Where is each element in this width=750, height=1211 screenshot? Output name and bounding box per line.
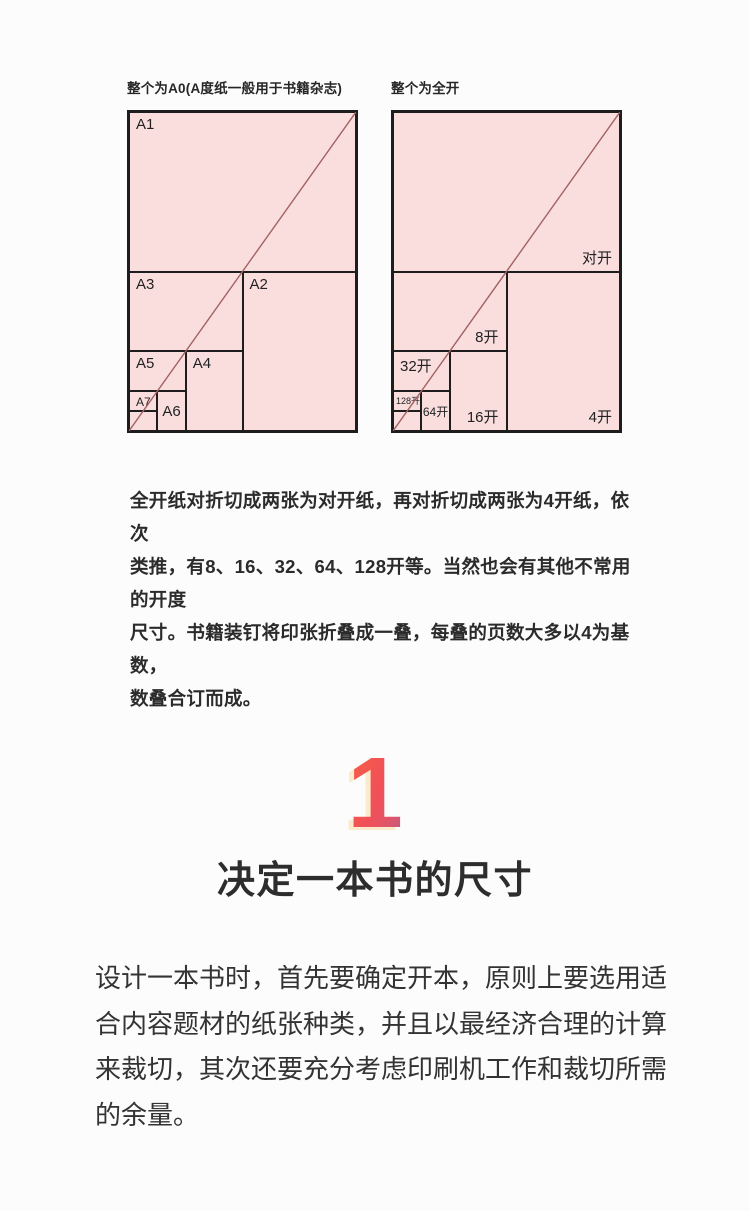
section-body-paragraph: 设计一本书时，首先要确定开本，原则上要选用适 合内容题材的纸张种类，并且以最经济… xyxy=(95,956,673,1138)
article-page: 整个为A0(A度纸一般用于书籍杂志) A1A3A2A5A4A7A6 整个为全开 … xyxy=(0,0,750,1211)
section-number: 1 1 xyxy=(347,743,403,843)
paper-cell-label: 4开 xyxy=(589,406,612,427)
section-heading: 决定一本书的尺寸 xyxy=(0,859,750,903)
paper-cell-label: A5 xyxy=(136,355,154,372)
paper-cell-4开: 4开 xyxy=(507,272,621,432)
paper-cell-label: A1 xyxy=(136,116,154,133)
paper-cell-label: 16开 xyxy=(467,406,499,427)
paper-cell-label: 128开 xyxy=(396,394,420,407)
a-series-caption: 整个为A0(A度纸一般用于书籍杂志) xyxy=(127,81,358,97)
paper-cell-A7: A7 xyxy=(129,391,157,411)
paper-cell-64开: 64开 xyxy=(421,391,449,431)
paper-cell-label: 8开 xyxy=(475,326,498,347)
paper-size-diagrams: 整个为A0(A度纸一般用于书籍杂志) A1A3A2A5A4A7A6 整个为全开 … xyxy=(127,81,622,433)
a-series-paper-diagram: A1A3A2A5A4A7A6 xyxy=(127,110,358,433)
paper-cell-A5: A5 xyxy=(129,351,186,391)
paper-cell-8开: 8开 xyxy=(393,272,507,352)
paper-cell-label: A6 xyxy=(162,403,180,420)
paper-cell-32开: 32开 xyxy=(393,351,450,391)
section-number-main: 1 xyxy=(347,737,403,849)
chapter-section: 1 1 决定一本书的尺寸 xyxy=(0,743,750,903)
paper-cell-A4: A4 xyxy=(186,351,243,431)
kai-series-figure: 整个为全开 对开8开4开32开16开128开64开 xyxy=(391,81,622,433)
kai-series-caption: 整个为全开 xyxy=(391,81,622,97)
paper-cell-label: 64开 xyxy=(423,403,448,420)
a-series-figure: 整个为A0(A度纸一般用于书籍杂志) A1A3A2A5A4A7A6 xyxy=(127,81,358,433)
kai-series-paper-diagram: 对开8开4开32开16开128开64开 xyxy=(391,110,622,433)
paper-cell-blank xyxy=(129,411,157,431)
paper-cell-label: A3 xyxy=(136,276,154,293)
paper-cell-label: A7 xyxy=(136,395,151,409)
paper-cell-A2: A2 xyxy=(243,272,357,432)
paper-cell-A6: A6 xyxy=(157,391,185,431)
paper-cell-A1: A1 xyxy=(129,112,356,272)
paper-cell-对开: 对开 xyxy=(393,112,620,272)
paper-cell-128开: 128开 xyxy=(393,391,421,411)
paper-cell-A3: A3 xyxy=(129,272,243,352)
paper-cell-blank xyxy=(393,411,421,431)
intro-paragraph: 全开纸对折切成两张为对开纸，再对折切成两张为4开纸，依次 类推，有8、16、32… xyxy=(130,484,645,715)
paper-cell-label: A2 xyxy=(250,276,268,293)
paper-cell-label: A4 xyxy=(193,355,211,372)
paper-cell-label: 对开 xyxy=(582,247,612,268)
paper-cell-16开: 16开 xyxy=(450,351,507,431)
paper-cell-label: 32开 xyxy=(400,355,432,376)
